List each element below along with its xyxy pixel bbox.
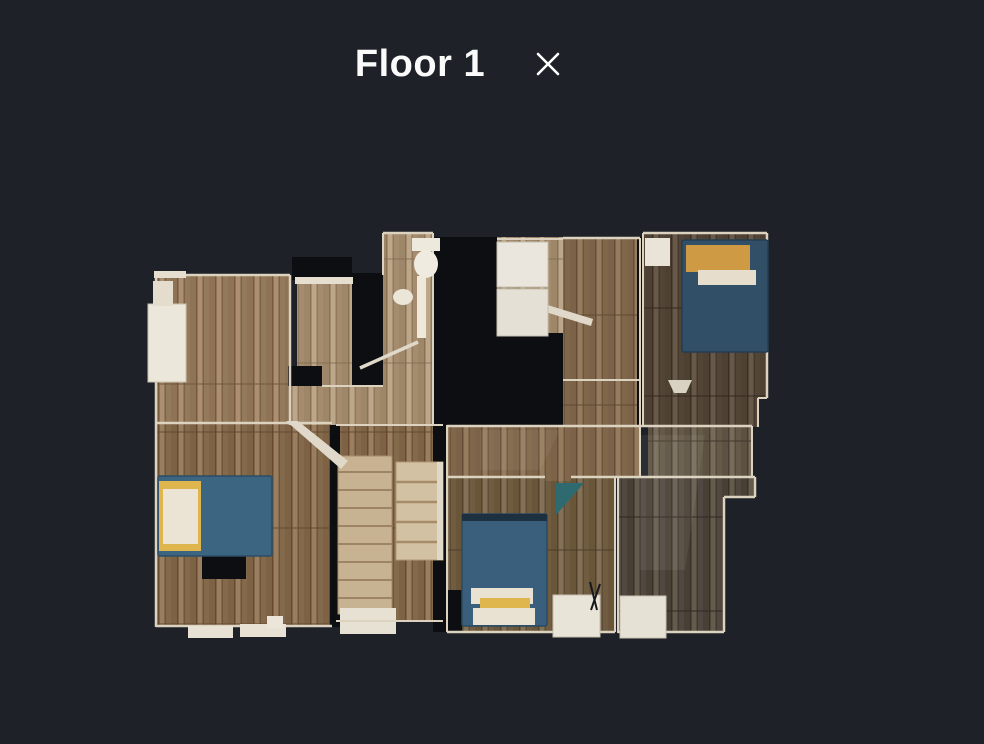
void-under-bed bbox=[202, 553, 246, 579]
floorplan-svg bbox=[0, 0, 984, 744]
floor-title: Floor 1 bbox=[355, 43, 485, 86]
washer bbox=[497, 242, 548, 287]
dresser-top-left bbox=[148, 304, 186, 382]
stair-rail-edge bbox=[437, 462, 443, 560]
floorplan-view: Floor 1 bbox=[0, 0, 984, 744]
void bbox=[292, 257, 352, 280]
void bbox=[352, 273, 383, 386]
void bbox=[433, 237, 497, 333]
bed-blanket bbox=[473, 608, 535, 625]
heater bbox=[188, 626, 233, 638]
kitchen-floor bbox=[563, 238, 640, 425]
bathroom-door-frame bbox=[417, 276, 426, 338]
floor-selector-header: Floor 1 bbox=[0, 40, 952, 88]
void bbox=[440, 590, 462, 632]
bed-pillow bbox=[686, 245, 750, 272]
staircase-upper bbox=[338, 456, 392, 614]
door-gap bbox=[545, 473, 571, 481]
close-button[interactable] bbox=[531, 47, 565, 81]
bed-pillow bbox=[163, 489, 198, 544]
wall-trim bbox=[295, 277, 353, 284]
close-icon bbox=[531, 47, 565, 81]
dresser-bottom-right bbox=[620, 596, 666, 638]
shelf-top-left bbox=[153, 281, 173, 306]
bed-headboard bbox=[462, 514, 547, 521]
dryer bbox=[497, 289, 548, 336]
dresser-center bbox=[553, 595, 600, 637]
void-center bbox=[433, 333, 563, 425]
bed-pillow bbox=[698, 270, 756, 285]
pillow-right-bedroom bbox=[645, 238, 670, 266]
void bbox=[288, 366, 322, 386]
wall-trim bbox=[154, 271, 186, 278]
staircase-lower bbox=[396, 462, 443, 560]
heater bbox=[267, 616, 283, 628]
toilet-tank bbox=[412, 238, 440, 251]
sink bbox=[393, 289, 413, 305]
toilet-bowl bbox=[414, 250, 438, 278]
floorplan-viewport[interactable] bbox=[0, 0, 984, 744]
